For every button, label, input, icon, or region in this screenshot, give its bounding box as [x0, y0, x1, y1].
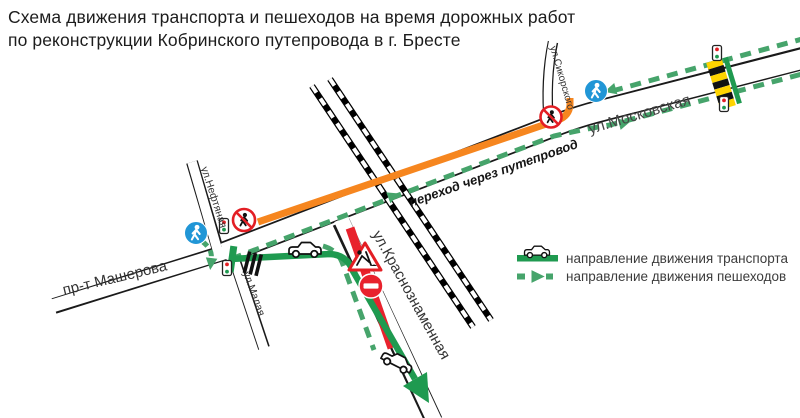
- traffic-light-icon: [720, 97, 729, 112]
- pedestrian-path-sign-east: [585, 80, 608, 103]
- pedestrian-path-sign-west: [185, 222, 208, 245]
- legend: направление движения транспорта направле…: [517, 246, 788, 284]
- traffic-light-icon: [223, 261, 232, 276]
- legend-transport-icon: [517, 246, 558, 261]
- legend-pedestrian-label: направление движения пешеходов: [566, 269, 786, 284]
- traffic-light-icon: [713, 46, 722, 61]
- legend-transport-label: направление движения транспорта: [566, 251, 788, 266]
- legend-pedestrian-icon: [517, 270, 553, 283]
- arrow-icon: [532, 270, 545, 283]
- no-pedestrians-sign-east: [541, 107, 562, 128]
- no-entry-sign: [359, 274, 383, 298]
- no-pedestrians-sign-west: [233, 209, 255, 231]
- traffic-scheme-map: ул.Московская пр-т Машерова ул.Краснозна…: [0, 0, 800, 418]
